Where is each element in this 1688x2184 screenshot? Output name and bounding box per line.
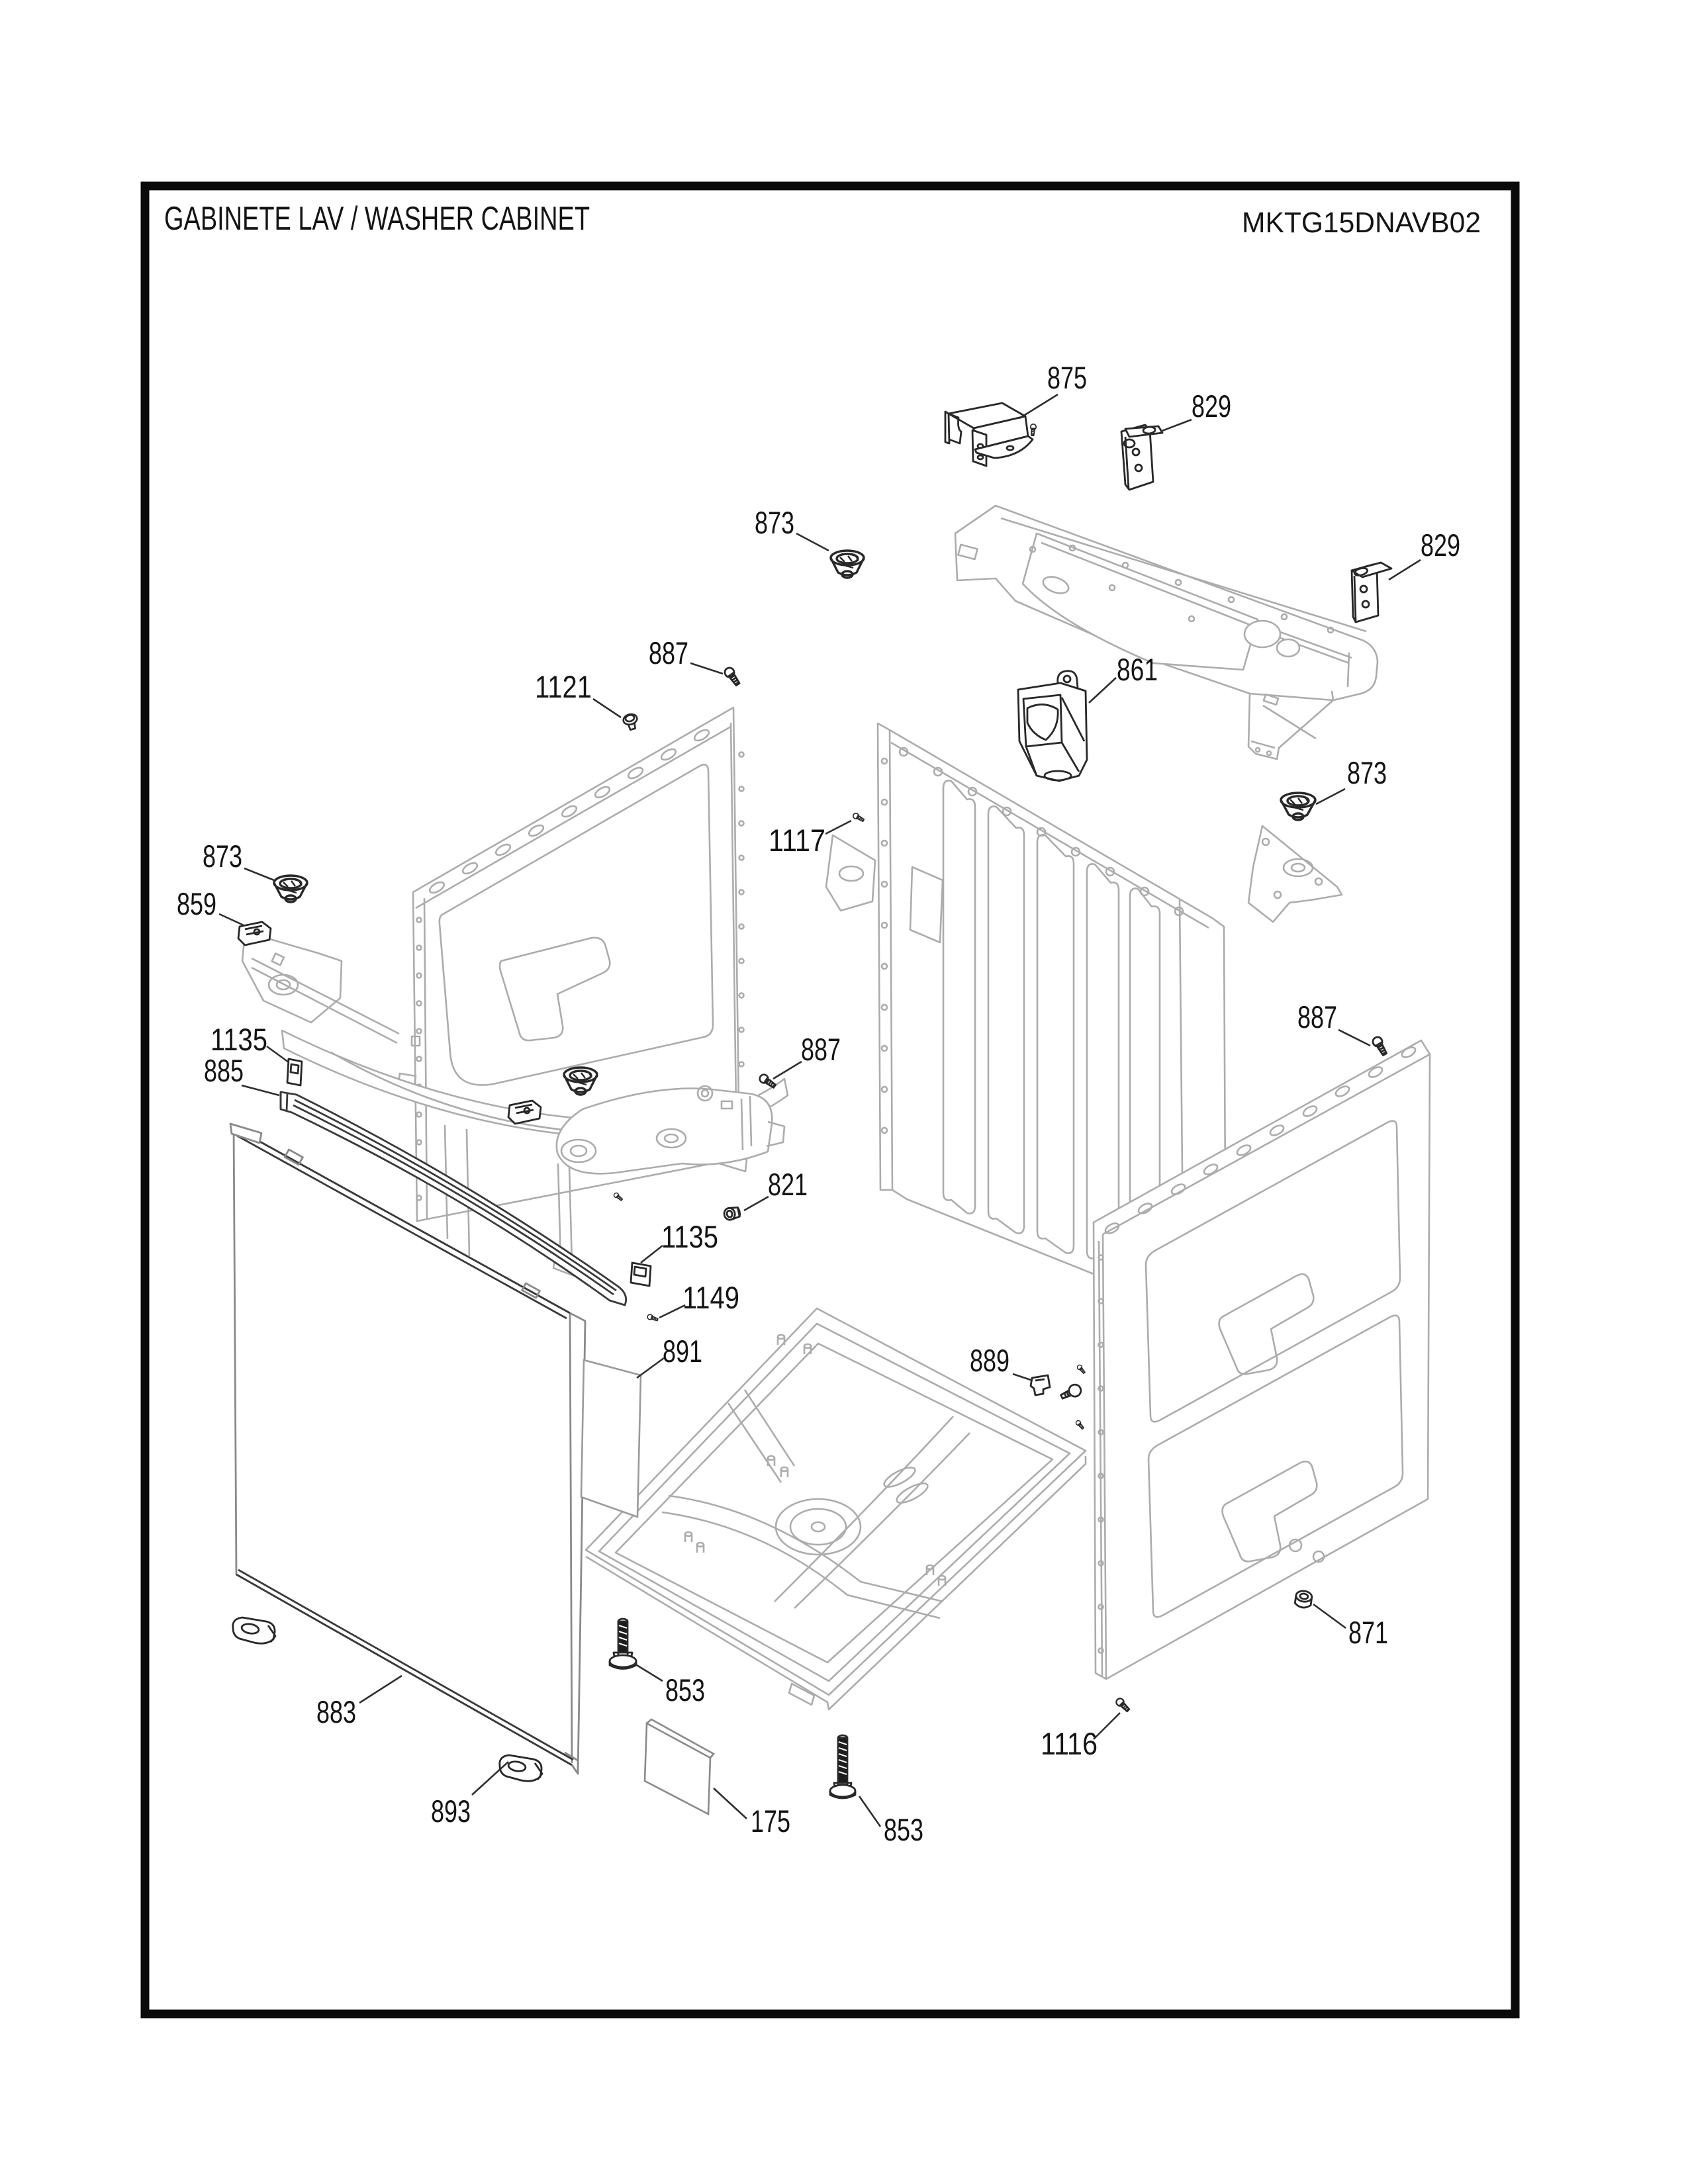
svg-text:883: 883	[316, 1694, 356, 1729]
svg-text:853: 853	[665, 1672, 705, 1707]
svg-text:873: 873	[203, 839, 242, 874]
svg-text:887: 887	[801, 1032, 841, 1067]
svg-text:873: 873	[1347, 755, 1387, 790]
svg-text:887: 887	[649, 635, 688, 670]
svg-text:1135: 1135	[211, 1022, 267, 1057]
svg-text:1135: 1135	[661, 1219, 718, 1254]
svg-text:893: 893	[431, 1794, 471, 1829]
svg-text:MKTG15DNAVB02: MKTG15DNAVB02	[1242, 206, 1481, 239]
svg-text:1117: 1117	[769, 823, 825, 858]
svg-text:859: 859	[177, 886, 216, 921]
svg-text:891: 891	[663, 1334, 702, 1369]
svg-text:875: 875	[1047, 360, 1087, 395]
svg-text:1116: 1116	[1041, 1726, 1098, 1761]
svg-text:887: 887	[1297, 999, 1337, 1034]
svg-text:889: 889	[970, 1343, 1009, 1378]
svg-text:853: 853	[884, 1812, 923, 1847]
svg-text:829: 829	[1192, 388, 1231, 424]
svg-text:821: 821	[768, 1167, 808, 1202]
svg-text:829: 829	[1421, 527, 1460, 563]
svg-text:885: 885	[204, 1053, 244, 1088]
svg-text:1149: 1149	[682, 1280, 739, 1315]
svg-text:175: 175	[751, 1803, 790, 1839]
svg-text:871: 871	[1348, 1615, 1388, 1650]
svg-text:861: 861	[1117, 652, 1158, 687]
svg-text:1121: 1121	[535, 669, 592, 704]
svg-text:GABINETE LAV / WASHER CABINET: GABINETE LAV / WASHER CABINET	[164, 200, 590, 237]
svg-text:873: 873	[755, 505, 794, 540]
